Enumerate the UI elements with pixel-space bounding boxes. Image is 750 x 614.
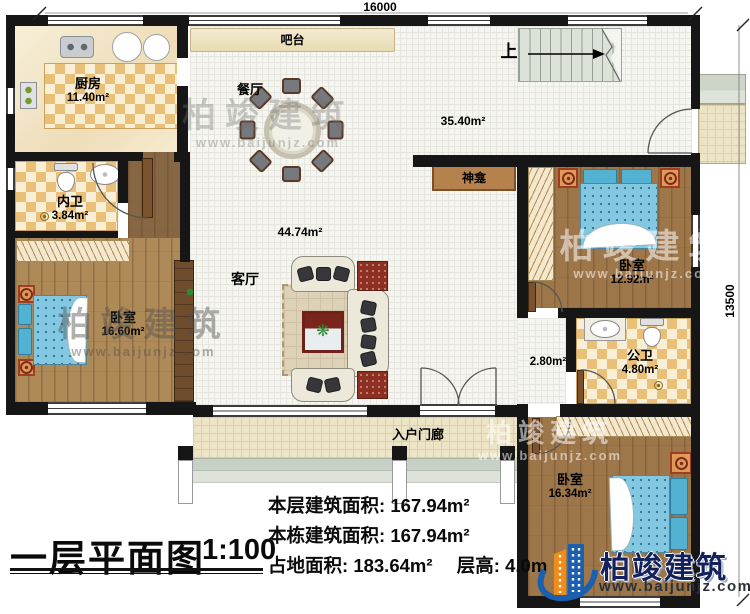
red-mat-bottom xyxy=(357,371,388,399)
wall xyxy=(413,155,700,167)
room-name: 卧室 xyxy=(94,310,152,326)
porch-column xyxy=(500,446,515,460)
stat-label: 本栋建筑面积: xyxy=(268,525,385,546)
sofa-cushion xyxy=(332,265,350,282)
wall xyxy=(340,15,428,26)
porch-step-1 xyxy=(178,458,518,470)
nightstand xyxy=(558,168,578,188)
dining-chair xyxy=(240,121,256,140)
wall xyxy=(118,161,128,203)
stairs-up-label: 上 xyxy=(498,42,520,62)
sofa-cushion xyxy=(323,377,341,394)
entrance-door-sill xyxy=(420,404,497,417)
red-mat-top xyxy=(357,261,388,291)
window xyxy=(213,405,367,417)
door-leaf xyxy=(577,370,584,404)
room-area: 12.92m² xyxy=(598,274,666,288)
wall xyxy=(146,402,196,415)
wall xyxy=(367,405,420,417)
room-name: 厨房 xyxy=(50,76,126,92)
nightstand xyxy=(670,452,692,474)
window xyxy=(48,15,143,26)
room-area: 3.84m² xyxy=(42,210,98,224)
toilet xyxy=(640,318,664,346)
window xyxy=(691,215,700,267)
dining-chair xyxy=(282,166,301,182)
window xyxy=(428,15,490,26)
room-area: 11.40m² xyxy=(50,92,126,106)
title-underline-thin xyxy=(10,573,263,574)
stat-land-height: 占地面积: 183.64m² 层高: 4.0m xyxy=(268,552,547,578)
door-opening xyxy=(177,58,188,86)
washbasin xyxy=(590,320,620,338)
room-label-bedroom-bottom: 卧室 16.34m² xyxy=(536,472,604,501)
corner-tick xyxy=(737,594,749,606)
headboard-cushion xyxy=(670,478,688,515)
porch-floor xyxy=(193,417,520,458)
area-label-upper-hall: 35.40m² xyxy=(426,114,500,128)
wall xyxy=(177,26,188,58)
title-underline xyxy=(10,568,263,571)
shrine-cabinet: 神龛 xyxy=(432,165,516,191)
headboard-cushion xyxy=(583,169,617,184)
wardrobe-right xyxy=(528,167,554,281)
room-name: 卧室 xyxy=(598,258,666,274)
toilet-tank xyxy=(54,163,78,171)
bed-left xyxy=(15,282,91,380)
wall xyxy=(15,231,118,238)
room-name: 公卫 xyxy=(608,348,672,364)
dimension-right-label: 13500 xyxy=(723,271,739,331)
stat-value: 167.94m² xyxy=(390,495,469,516)
area-label-hallway: 2.80m² xyxy=(518,356,578,370)
toilet-bowl xyxy=(57,172,75,192)
sofa-cushion xyxy=(360,334,377,350)
window xyxy=(48,402,146,415)
room-name: 内卫 xyxy=(42,194,98,210)
room-label-public-bathroom: 公卫 4.80m² xyxy=(608,348,672,377)
wall xyxy=(517,155,528,318)
wall xyxy=(143,15,189,26)
room-label-kitchen: 厨房 11.40m² xyxy=(50,76,126,105)
wall xyxy=(490,15,568,26)
wall xyxy=(177,86,188,152)
door-leaf xyxy=(532,418,540,454)
sofa-cushion xyxy=(359,299,377,316)
corner-tick xyxy=(737,19,749,31)
sofa-cushion xyxy=(359,316,376,332)
dining-chair xyxy=(282,78,301,94)
kitchen-burner-1 xyxy=(112,32,142,62)
headboard-cushion xyxy=(621,169,652,184)
nightstand xyxy=(660,168,680,188)
sofa-cushion xyxy=(359,350,377,367)
door-leaf xyxy=(528,282,536,312)
plant-icon: ❋ xyxy=(316,324,329,340)
wardrobe-bottom xyxy=(556,416,692,437)
wall xyxy=(180,160,190,262)
room-area: 4.80m² xyxy=(608,364,672,378)
knob-icon xyxy=(20,288,33,301)
plant-icon xyxy=(186,288,194,296)
staircase xyxy=(518,28,622,82)
dining-chair xyxy=(328,121,344,140)
area-label-living: 44.74m² xyxy=(268,225,332,239)
sofa-top xyxy=(291,256,355,292)
room-label-dining: 餐厅 xyxy=(222,82,278,98)
sofa-cushion xyxy=(296,265,314,282)
window xyxy=(568,15,647,26)
sofa-cushion xyxy=(316,267,331,281)
bed-right xyxy=(555,166,690,252)
porch-step-2 xyxy=(178,470,518,483)
brand-logo-icon xyxy=(532,538,600,602)
wardrobe-left xyxy=(16,240,130,262)
toilet-bowl xyxy=(643,327,661,347)
floor-drain xyxy=(654,381,663,390)
wall xyxy=(560,404,700,417)
wall xyxy=(6,152,143,161)
wall xyxy=(6,402,48,415)
knob-icon xyxy=(562,172,575,185)
sofa-cushion xyxy=(305,376,323,393)
stat-total-area: 本栋建筑面积: 167.94m² xyxy=(268,522,470,548)
wall xyxy=(691,15,700,109)
washbasin xyxy=(90,164,120,185)
dining-table xyxy=(264,102,321,159)
shrine-label: 神龛 xyxy=(462,171,486,185)
porch-column-base xyxy=(500,460,515,504)
kitchen-sink xyxy=(60,36,94,58)
wall xyxy=(660,596,700,608)
coffee-table: ❋ xyxy=(302,311,344,353)
bar-counter: 吧台 xyxy=(190,28,395,52)
headboard-cushion xyxy=(18,304,32,325)
room-name: 卧室 xyxy=(536,472,604,488)
brand-website: www.baijunjz.com xyxy=(599,578,750,595)
floor-plan: 吧台 神龛 ❋ xyxy=(0,0,750,614)
wall xyxy=(6,15,15,415)
window xyxy=(6,168,15,190)
window xyxy=(189,15,340,26)
sofa-right xyxy=(347,289,389,377)
wall xyxy=(558,308,700,318)
room-label-porch: 入户门廊 xyxy=(368,427,468,443)
kitchen-burner-2 xyxy=(143,34,170,61)
dimension-top-label: 16000 xyxy=(330,0,430,14)
window xyxy=(6,88,15,114)
toilet-tank xyxy=(640,318,664,326)
side-porch-floor xyxy=(698,104,746,164)
knob-icon xyxy=(675,457,688,470)
stat-value: 167.94m² xyxy=(390,525,469,546)
sofa-bottom xyxy=(291,368,355,402)
room-label-bedroom-left: 卧室 16.60m² xyxy=(94,310,152,339)
room-label-bedroom-right: 卧室 12.92m² xyxy=(598,258,666,287)
room-area: 16.60m² xyxy=(94,326,152,340)
kitchen-stove xyxy=(20,82,37,109)
porch-column-base xyxy=(178,460,193,504)
bar-label: 吧台 xyxy=(280,33,304,47)
porch-column xyxy=(178,446,193,460)
stat-value: 183.64m² xyxy=(353,555,432,576)
tv-panel xyxy=(174,260,194,402)
room-label-living: 客厅 xyxy=(218,271,272,288)
wall xyxy=(193,405,213,417)
plan-scale: 1:100 xyxy=(202,534,276,567)
stat-floor-area: 本层建筑面积: 167.94m² xyxy=(268,492,470,518)
door-leaf xyxy=(142,158,153,218)
porch-column xyxy=(392,446,407,460)
knob-icon xyxy=(20,361,33,374)
stat-label: 层高: xyxy=(457,555,500,576)
toilet xyxy=(54,163,78,191)
side-porch-step xyxy=(698,74,746,104)
bed-bottom xyxy=(608,450,692,554)
headboard-cushion xyxy=(18,328,32,355)
knob-icon xyxy=(664,172,677,185)
stat-label: 占地面积: xyxy=(268,555,348,576)
room-label-inner-bathroom: 内卫 3.84m² xyxy=(42,194,98,223)
stat-label: 本层建筑面积: xyxy=(268,495,385,516)
room-area: 16.34m² xyxy=(536,488,604,502)
